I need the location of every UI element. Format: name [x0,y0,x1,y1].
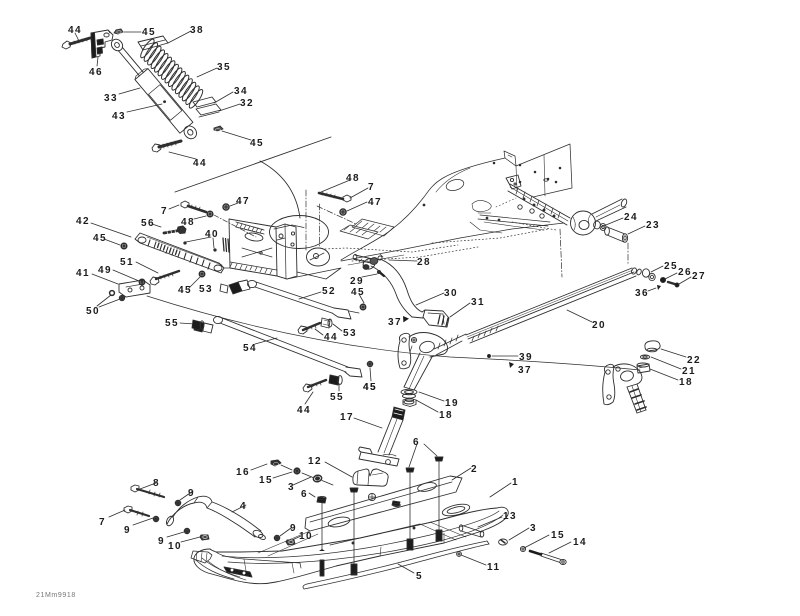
svg-text:26: 26 [678,267,692,278]
svg-text:9: 9 [124,525,131,536]
svg-text:23: 23 [646,220,660,231]
svg-text:44: 44 [297,405,311,416]
svg-text:47: 47 [368,197,382,208]
svg-text:15: 15 [259,475,273,486]
svg-text:14: 14 [573,537,587,548]
svg-text:7: 7 [161,206,168,217]
svg-text:28: 28 [417,257,431,268]
svg-text:44: 44 [324,332,338,343]
svg-text:51: 51 [120,257,134,268]
svg-text:56: 56 [141,218,155,229]
svg-text:16: 16 [236,467,250,478]
svg-text:38: 38 [190,25,204,36]
svg-text:18: 18 [679,377,693,388]
svg-text:20: 20 [592,320,606,331]
svg-text:33: 33 [104,93,118,104]
svg-text:41: 41 [76,268,90,279]
svg-text:19: 19 [445,398,459,409]
svg-text:52: 52 [322,286,336,297]
svg-text:22: 22 [687,355,701,366]
svg-text:54: 54 [243,343,257,354]
svg-text:7: 7 [368,182,375,193]
svg-text:36: 36 [635,288,649,299]
svg-text:27: 27 [692,271,706,282]
svg-text:48: 48 [346,173,360,184]
svg-text:45: 45 [351,287,365,298]
svg-text:15: 15 [551,530,565,541]
svg-text:3: 3 [288,482,295,493]
svg-text:47: 47 [236,196,250,207]
svg-text:30: 30 [444,288,458,299]
svg-text:45: 45 [363,382,377,393]
svg-text:2: 2 [471,464,478,475]
svg-text:13: 13 [503,511,517,522]
svg-text:37: 37 [388,317,402,328]
svg-text:49: 49 [98,265,112,276]
svg-text:45: 45 [250,138,264,149]
svg-text:44: 44 [193,158,207,169]
svg-text:17: 17 [340,412,354,423]
svg-text:6: 6 [301,489,308,500]
svg-text:45: 45 [142,27,156,38]
svg-text:9: 9 [290,523,297,534]
svg-text:21Mm9918: 21Mm9918 [36,592,76,599]
svg-text:5: 5 [416,571,423,582]
svg-text:45: 45 [93,233,107,244]
svg-text:21: 21 [682,366,696,377]
svg-text:50: 50 [86,306,100,317]
svg-text:11: 11 [487,562,501,573]
svg-text:10: 10 [299,531,313,542]
svg-text:31: 31 [471,297,485,308]
svg-text:24: 24 [624,212,638,223]
svg-text:37: 37 [518,365,532,376]
svg-text:1: 1 [512,477,519,488]
svg-text:55: 55 [165,318,179,329]
svg-text:43: 43 [112,111,126,122]
svg-text:12: 12 [308,456,322,467]
svg-text:7: 7 [99,517,106,528]
svg-text:46: 46 [89,67,103,78]
svg-text:53: 53 [343,328,357,339]
svg-text:9: 9 [158,536,165,547]
svg-text:10: 10 [168,541,182,552]
svg-text:42: 42 [76,216,90,227]
svg-text:25: 25 [664,261,678,272]
svg-text:55: 55 [330,392,344,403]
svg-text:18: 18 [439,410,453,421]
svg-text:40: 40 [205,229,219,240]
svg-text:32: 32 [240,98,254,109]
svg-text:35: 35 [217,62,231,73]
svg-text:3: 3 [530,523,537,534]
svg-text:29: 29 [350,276,364,287]
svg-text:53: 53 [199,284,213,295]
svg-text:44: 44 [68,25,82,36]
svg-text:34: 34 [234,86,248,97]
